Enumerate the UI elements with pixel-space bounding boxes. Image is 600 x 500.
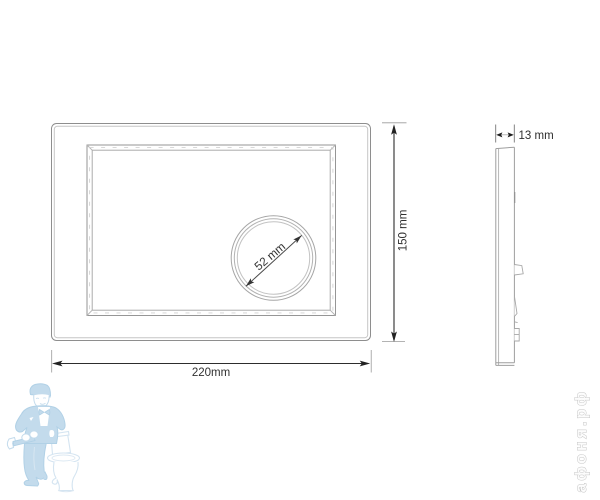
svg-text:13 mm: 13 mm xyxy=(519,130,554,142)
svg-text:220mm: 220mm xyxy=(192,367,230,379)
svg-text:150 mm: 150 mm xyxy=(397,210,409,252)
svg-text:афоня.рф: афоня.рф xyxy=(573,389,590,493)
